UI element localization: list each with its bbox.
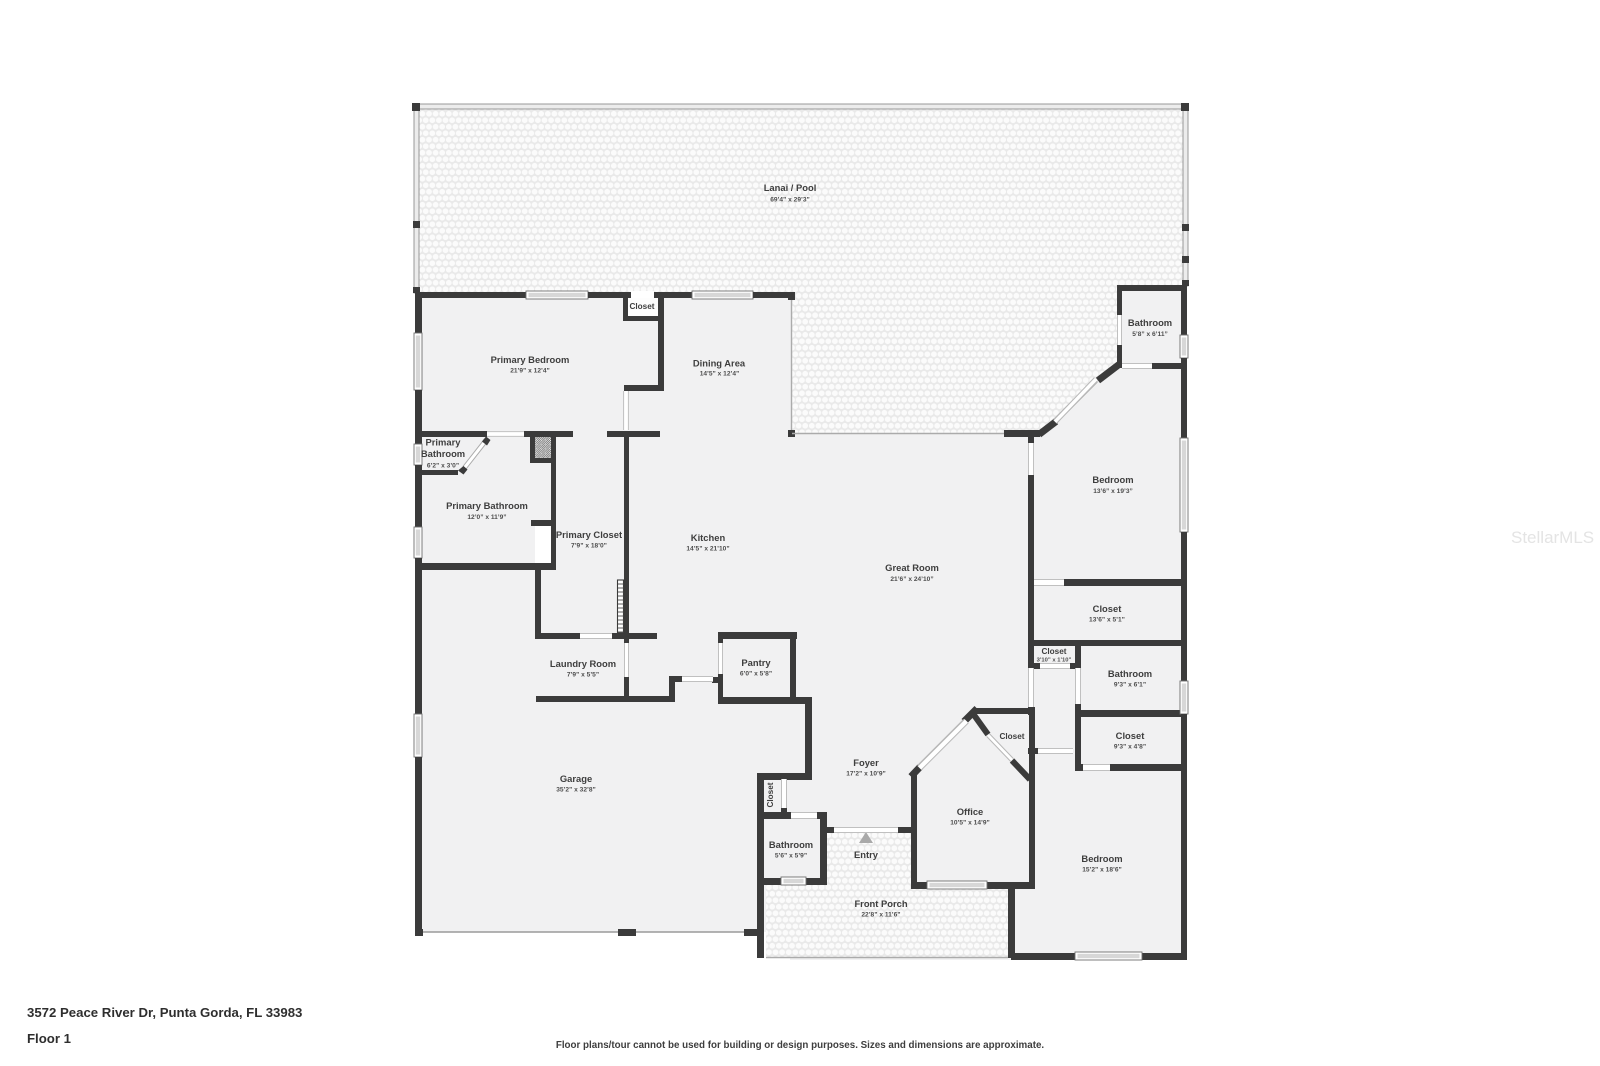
svg-text:3’10” x 1’10”: 3’10” x 1’10” xyxy=(1037,658,1072,664)
svg-text:10’5” x 14’9”: 10’5” x 14’9” xyxy=(950,820,990,827)
svg-text:13’6” x 5’1”: 13’6” x 5’1” xyxy=(1089,617,1125,624)
svg-text:Foyer: Foyer xyxy=(853,757,879,768)
svg-text:Kitchen: Kitchen xyxy=(691,532,726,543)
svg-text:Closet: Closet xyxy=(766,782,775,807)
svg-text:15’2” x 18’6”: 15’2” x 18’6” xyxy=(1082,867,1122,874)
svg-text:Office: Office xyxy=(957,806,984,817)
svg-text:69’4” x 29’3”: 69’4” x 29’3” xyxy=(770,197,810,204)
svg-text:7’9” x 5’5”: 7’9” x 5’5” xyxy=(567,672,599,679)
svg-text:Floor plans/tour cannot be use: Floor plans/tour cannot be used for buil… xyxy=(556,1040,1045,1051)
svg-text:Floor 1: Floor 1 xyxy=(27,1031,71,1046)
svg-text:Primary Closet: Primary Closet xyxy=(556,529,622,540)
svg-text:Garage: Garage xyxy=(560,773,592,784)
svg-text:14’5” x 12’4”: 14’5” x 12’4” xyxy=(700,371,740,378)
svg-text:Closet: Closet xyxy=(1116,730,1145,741)
svg-text:Lanai / Pool: Lanai / Pool xyxy=(764,182,817,193)
svg-text:Bedroom: Bedroom xyxy=(1081,853,1122,864)
svg-text:Dining Area: Dining Area xyxy=(693,358,746,369)
svg-text:22’8” x 11’6”: 22’8” x 11’6” xyxy=(861,912,900,919)
svg-text:21’9” x 12’4”: 21’9” x 12’4” xyxy=(510,368,550,375)
svg-text:Pantry: Pantry xyxy=(741,657,771,668)
svg-text:9’3” x 4’8”: 9’3” x 4’8” xyxy=(1114,744,1146,751)
svg-text:6’0” x 5’8”: 6’0” x 5’8” xyxy=(740,671,772,678)
svg-text:17’2” x 10’9”: 17’2” x 10’9” xyxy=(846,771,886,778)
svg-text:14’5” x 21’10”: 14’5” x 21’10” xyxy=(686,546,729,553)
svg-text:Bedroom: Bedroom xyxy=(1092,474,1133,485)
svg-text:Closet: Closet xyxy=(1041,647,1066,656)
svg-text:Primary: Primary xyxy=(426,437,462,448)
svg-text:StellarMLS: StellarMLS xyxy=(1511,528,1594,547)
svg-text:13’6” x 19’3”: 13’6” x 19’3” xyxy=(1093,488,1133,495)
svg-text:Bathroom: Bathroom xyxy=(421,448,465,459)
svg-text:12’0” x 11’9”: 12’0” x 11’9” xyxy=(467,514,506,521)
svg-text:Front Porch: Front Porch xyxy=(854,898,907,909)
svg-text:Bathroom: Bathroom xyxy=(1128,317,1172,328)
svg-text:5’6” x 5’9”: 5’6” x 5’9” xyxy=(775,853,807,860)
svg-text:Entry: Entry xyxy=(854,849,879,860)
svg-text:Closet: Closet xyxy=(999,732,1024,741)
svg-text:6’2” x 3’0”: 6’2” x 3’0” xyxy=(427,463,459,470)
svg-text:Bathroom: Bathroom xyxy=(769,839,813,850)
svg-text:5’8” x 6’11”: 5’8” x 6’11” xyxy=(1132,331,1168,338)
svg-text:Closet: Closet xyxy=(629,302,654,311)
svg-text:Primary Bathroom: Primary Bathroom xyxy=(446,500,528,511)
svg-text:Great Room: Great Room xyxy=(885,562,939,573)
svg-text:3572 Peace River Dr, Punta Gor: 3572 Peace River Dr, Punta Gorda, FL 339… xyxy=(27,1005,302,1020)
svg-text:Bathroom: Bathroom xyxy=(1108,668,1152,679)
svg-text:9’3” x 6’1”: 9’3” x 6’1” xyxy=(1114,682,1146,689)
svg-text:Laundry Room: Laundry Room xyxy=(550,658,616,669)
svg-text:Primary Bedroom: Primary Bedroom xyxy=(491,354,570,365)
svg-text:Closet: Closet xyxy=(1093,603,1122,614)
svg-text:21’6” x 24’10”: 21’6” x 24’10” xyxy=(890,576,933,583)
svg-text:7’9” x 18’0”: 7’9” x 18’0” xyxy=(571,543,607,550)
svg-text:35’2” x 32’8”: 35’2” x 32’8” xyxy=(556,787,596,794)
